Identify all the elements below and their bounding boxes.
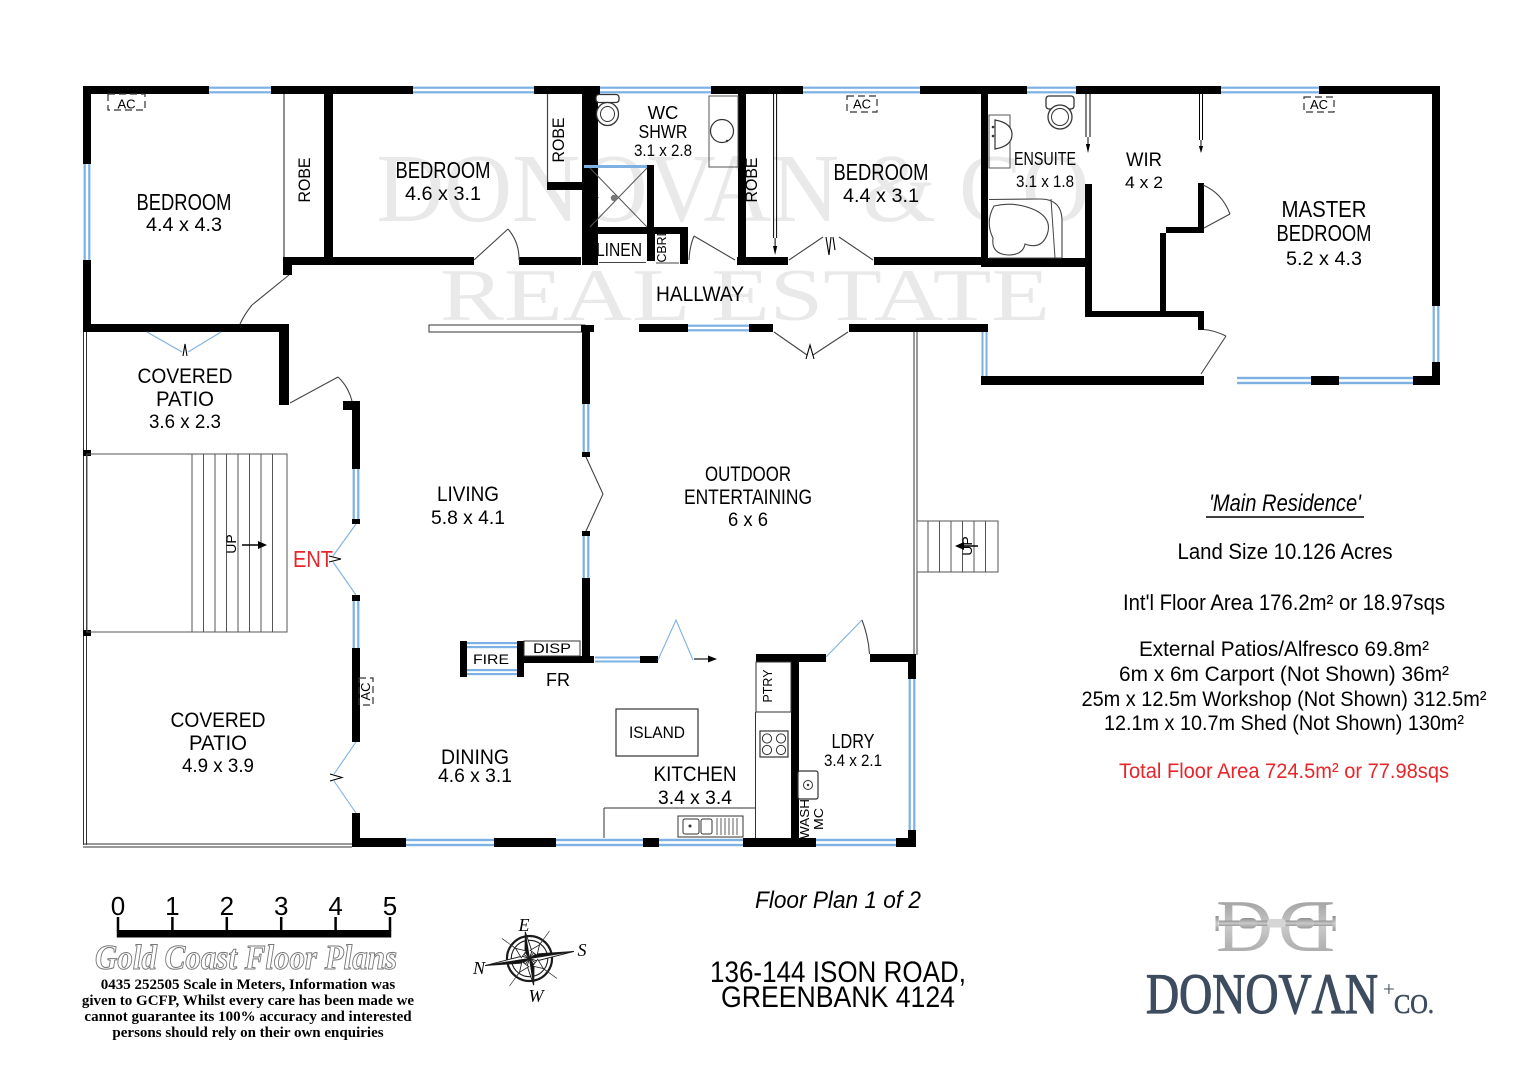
svg-text:AC: AC xyxy=(358,682,373,700)
svg-text:3.1 x 1.8: 3.1 x 1.8 xyxy=(1016,172,1074,191)
svg-text:COVERED: COVERED xyxy=(138,365,233,388)
svg-text:ENSUITE: ENSUITE xyxy=(1014,148,1076,169)
svg-text:AC: AC xyxy=(853,97,871,112)
svg-text:CBRD: CBRD xyxy=(654,228,669,263)
svg-text:3: 3 xyxy=(274,891,288,921)
svg-text:cannot guarantee its 100% accu: cannot guarantee its 100% accuracy and i… xyxy=(84,1009,412,1025)
svg-text:6m x 6m Carport (Not Shown) 36: 6m x 6m Carport (Not Shown) 36m² xyxy=(1119,663,1449,686)
svg-text:5: 5 xyxy=(383,891,397,921)
svg-text:25m x 12.5m Workshop (Not Show: 25m x 12.5m Workshop (Not Shown) 312.5m² xyxy=(1082,688,1487,711)
svg-text:LDRY: LDRY xyxy=(832,731,875,753)
svg-text:4.9 x 3.9: 4.9 x 3.9 xyxy=(182,755,254,777)
svg-text:FR: FR xyxy=(546,670,570,690)
svg-text:UP: UP xyxy=(223,534,239,553)
svg-text:'Main Residence': 'Main Residence' xyxy=(1209,490,1362,517)
svg-text:3.6 x 2.3: 3.6 x 2.3 xyxy=(149,411,221,433)
svg-text:External Patios/Alfresco 69.8m: External Patios/Alfresco 69.8m² xyxy=(1139,638,1429,661)
svg-text:1: 1 xyxy=(165,891,179,921)
svg-text:Int'l Floor Area 176.2m² or 18: Int'l Floor Area 176.2m² or 18.97sqs xyxy=(1123,590,1445,615)
svg-text:AC: AC xyxy=(1310,97,1328,112)
svg-text:GREENBANK 4124: GREENBANK 4124 xyxy=(721,981,955,1014)
svg-text:3.4 x 2.1: 3.4 x 2.1 xyxy=(824,751,882,770)
svg-text:WIR: WIR xyxy=(1126,150,1162,171)
svg-text:4.4 x 3.1: 4.4 x 3.1 xyxy=(843,185,919,207)
svg-text:KITCHEN: KITCHEN xyxy=(654,763,737,786)
svg-text:12.1m x 10.7m Shed (Not Shown): 12.1m x 10.7m Shed (Not Shown) 130m² xyxy=(1104,712,1464,735)
svg-text:WASH: WASH xyxy=(797,799,812,839)
svg-text:WC: WC xyxy=(648,102,679,123)
svg-text:ROBE: ROBE xyxy=(549,118,568,163)
svg-text:PTRY: PTRY xyxy=(760,669,775,702)
svg-text:4.4 x 4.3: 4.4 x 4.3 xyxy=(146,214,222,236)
svg-text:BEDROOM: BEDROOM xyxy=(834,159,929,185)
svg-text:Land Size 10.126 Acres: Land Size 10.126 Acres xyxy=(1178,539,1393,564)
svg-text:MC: MC xyxy=(811,808,826,830)
svg-text:DISP: DISP xyxy=(533,640,571,656)
svg-text:ROBE: ROBE xyxy=(295,158,314,203)
svg-text:DONOVΛN: DONOVΛN xyxy=(1146,963,1378,1026)
svg-text:5.2 x 4.3: 5.2 x 4.3 xyxy=(1286,248,1362,270)
svg-text:0: 0 xyxy=(111,891,125,921)
svg-text:4.6 x 3.1: 4.6 x 3.1 xyxy=(405,183,481,205)
svg-text:W: W xyxy=(529,986,546,1006)
svg-text:ENT: ENT xyxy=(293,546,333,572)
svg-text:4 x 2: 4 x 2 xyxy=(1125,173,1163,192)
svg-text:LINEN: LINEN xyxy=(596,240,642,260)
svg-text:OUTDOOR: OUTDOOR xyxy=(705,463,791,486)
svg-text:BEDROOM: BEDROOM xyxy=(396,157,491,183)
svg-text:5.8 x 4.1: 5.8 x 4.1 xyxy=(431,507,505,529)
svg-text:FIRE: FIRE xyxy=(473,651,509,667)
svg-text:PATIO: PATIO xyxy=(156,388,214,411)
svg-text:given to GCFP, Whilst every ca: given to GCFP, Whilst every care has bee… xyxy=(82,993,415,1009)
svg-text:persons should rely on their o: persons should rely on their own enquiri… xyxy=(112,1025,383,1041)
svg-text:BEDROOM: BEDROOM xyxy=(1277,220,1372,246)
svg-text:ISLAND: ISLAND xyxy=(629,723,685,742)
svg-text:AC: AC xyxy=(117,97,135,112)
svg-text:Floor Plan 1 of 2: Floor Plan 1 of 2 xyxy=(755,887,921,914)
svg-text:Gold Coast Floor Plans: Gold Coast Floor Plans xyxy=(95,938,397,977)
svg-text:ROBE: ROBE xyxy=(742,158,761,203)
svg-text:6 x 6: 6 x 6 xyxy=(728,509,768,531)
svg-text:3.1 x 2.8: 3.1 x 2.8 xyxy=(634,141,692,160)
svg-text:MASTER: MASTER xyxy=(1282,196,1367,222)
svg-text:S: S xyxy=(578,940,587,960)
svg-text:Total Floor Area 724.5m² or 77: Total Floor Area 724.5m² or 77.98sqs xyxy=(1119,760,1449,783)
svg-text:CO.: CO. xyxy=(1394,989,1434,1019)
svg-text:2: 2 xyxy=(220,891,234,921)
svg-text:COVERED: COVERED xyxy=(171,709,266,732)
svg-text:BEDROOM: BEDROOM xyxy=(137,189,232,215)
svg-text:3.4 x 3.4: 3.4 x 3.4 xyxy=(658,787,732,809)
svg-text:4: 4 xyxy=(328,891,342,921)
svg-text:LIVING: LIVING xyxy=(437,483,499,506)
svg-text:E: E xyxy=(518,915,530,935)
svg-text:HALLWAY: HALLWAY xyxy=(656,283,744,306)
svg-text:SHWR: SHWR xyxy=(639,121,688,142)
svg-text:N: N xyxy=(472,958,486,978)
svg-text:PATIO: PATIO xyxy=(189,732,247,755)
svg-text:4.6 x 3.1: 4.6 x 3.1 xyxy=(438,765,512,787)
svg-text:0435 252505 Scale in Meters, I: 0435 252505 Scale in Meters, Information… xyxy=(101,977,396,993)
svg-text:ENTERTAINING: ENTERTAINING xyxy=(684,486,812,509)
